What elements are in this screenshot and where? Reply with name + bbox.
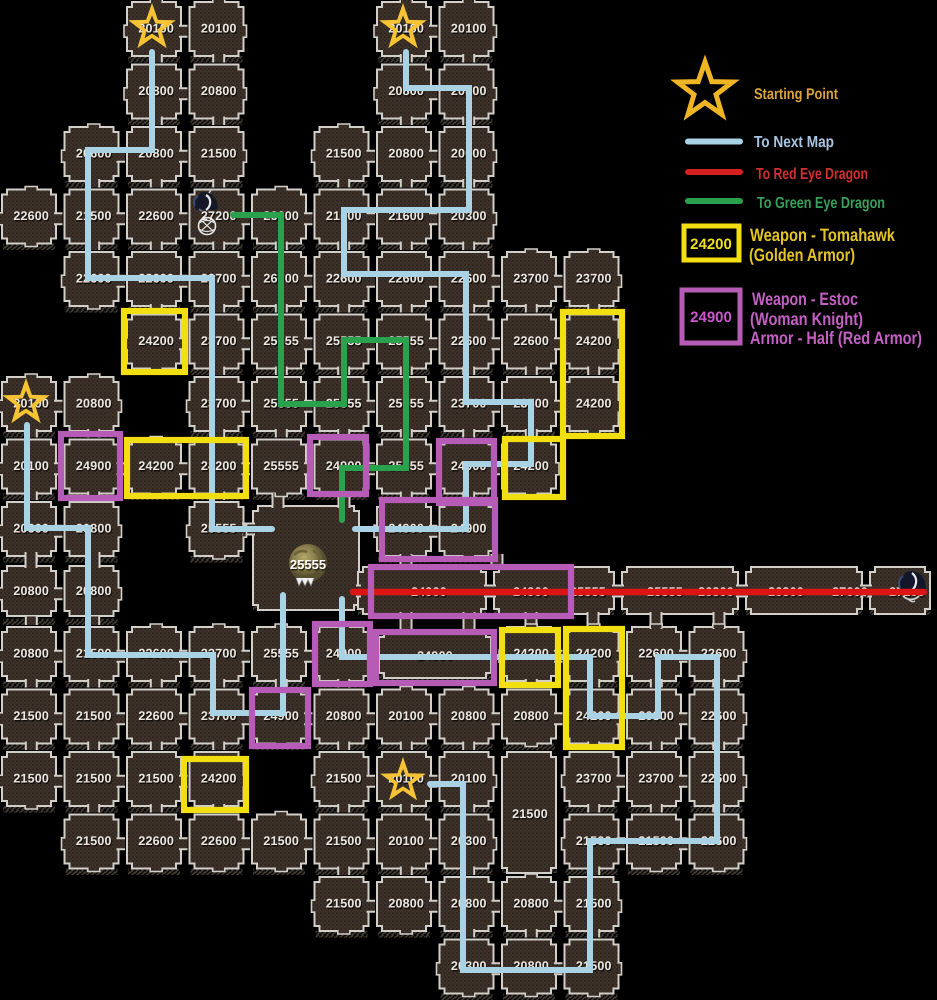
svg-text:24200: 24200	[138, 334, 174, 348]
svg-text:Armor - Half (Red Armor): Armor - Half (Red Armor)	[750, 328, 922, 348]
svg-text:21500: 21500	[512, 807, 548, 821]
svg-text:20800: 20800	[76, 397, 112, 411]
svg-text:23700: 23700	[576, 772, 612, 786]
svg-text:22600: 22600	[201, 834, 237, 848]
svg-text:25555: 25555	[290, 557, 326, 572]
svg-text:24900: 24900	[76, 459, 112, 473]
svg-text:21500: 21500	[76, 834, 112, 848]
svg-text:21500: 21500	[76, 209, 112, 223]
svg-text:20800: 20800	[388, 897, 424, 911]
svg-text:21500: 21500	[326, 897, 362, 911]
svg-text:20800: 20800	[513, 897, 549, 911]
svg-text:24900: 24900	[690, 309, 732, 326]
svg-text:21500: 21500	[13, 772, 49, 786]
svg-text:24200: 24200	[201, 459, 237, 473]
svg-text:22600: 22600	[13, 209, 49, 223]
svg-text:(Golden Armor): (Golden Armor)	[749, 245, 855, 265]
svg-text:21500: 21500	[76, 709, 112, 723]
svg-text:20100: 20100	[451, 22, 487, 36]
svg-text:24200: 24200	[690, 236, 732, 253]
svg-text:22600: 22600	[513, 334, 549, 348]
svg-text:24200: 24200	[576, 397, 612, 411]
svg-text:20300: 20300	[451, 834, 487, 848]
svg-text:21500: 21500	[76, 772, 112, 786]
svg-text:To Red Eye Dragon: To Red Eye Dragon	[756, 166, 868, 183]
svg-text:20100: 20100	[201, 22, 237, 36]
svg-text:22600: 22600	[138, 209, 174, 223]
svg-text:21500: 21500	[326, 772, 362, 786]
svg-text:21500: 21500	[201, 147, 237, 161]
svg-text:20800: 20800	[13, 584, 49, 598]
svg-text:21500: 21500	[326, 834, 362, 848]
svg-text:24200: 24200	[138, 459, 174, 473]
svg-text:22600: 22600	[138, 709, 174, 723]
svg-text:Weapon - Tomahawk: Weapon - Tomahawk	[750, 225, 896, 245]
svg-text:22600: 22600	[138, 834, 174, 848]
svg-text:Weapon - Estoc: Weapon - Estoc	[752, 289, 858, 309]
svg-text:24200: 24200	[201, 772, 237, 786]
svg-text:23700: 23700	[513, 272, 549, 286]
svg-text:(Woman Knight): (Woman Knight)	[750, 309, 863, 329]
svg-text:To Next Map: To Next Map	[754, 134, 834, 151]
svg-text:20100: 20100	[388, 834, 424, 848]
svg-text:20800: 20800	[13, 647, 49, 661]
svg-text:21500: 21500	[576, 897, 612, 911]
svg-text:21500: 21500	[13, 709, 49, 723]
svg-text:20800: 20800	[326, 709, 362, 723]
svg-text:20800: 20800	[76, 584, 112, 598]
svg-text:20800: 20800	[451, 897, 487, 911]
svg-text:23700: 23700	[638, 772, 674, 786]
svg-text:Starting Point: Starting Point	[754, 86, 838, 103]
svg-text:To Green Eye Dragon: To Green Eye Dragon	[757, 195, 885, 212]
svg-text:25555: 25555	[263, 459, 299, 473]
svg-text:20800: 20800	[201, 84, 237, 98]
svg-text:20800: 20800	[388, 147, 424, 161]
svg-text:20100: 20100	[388, 709, 424, 723]
svg-text:20100: 20100	[13, 459, 49, 473]
svg-text:20800: 20800	[138, 84, 174, 98]
svg-text:21500: 21500	[138, 772, 174, 786]
svg-text:23700: 23700	[201, 334, 237, 348]
svg-text:21500: 21500	[326, 147, 362, 161]
svg-text:20800: 20800	[451, 709, 487, 723]
svg-text:23700: 23700	[576, 272, 612, 286]
svg-text:23700: 23700	[201, 397, 237, 411]
svg-text:24200: 24200	[576, 334, 612, 348]
svg-text:20800: 20800	[513, 709, 549, 723]
svg-text:21500: 21500	[263, 834, 299, 848]
